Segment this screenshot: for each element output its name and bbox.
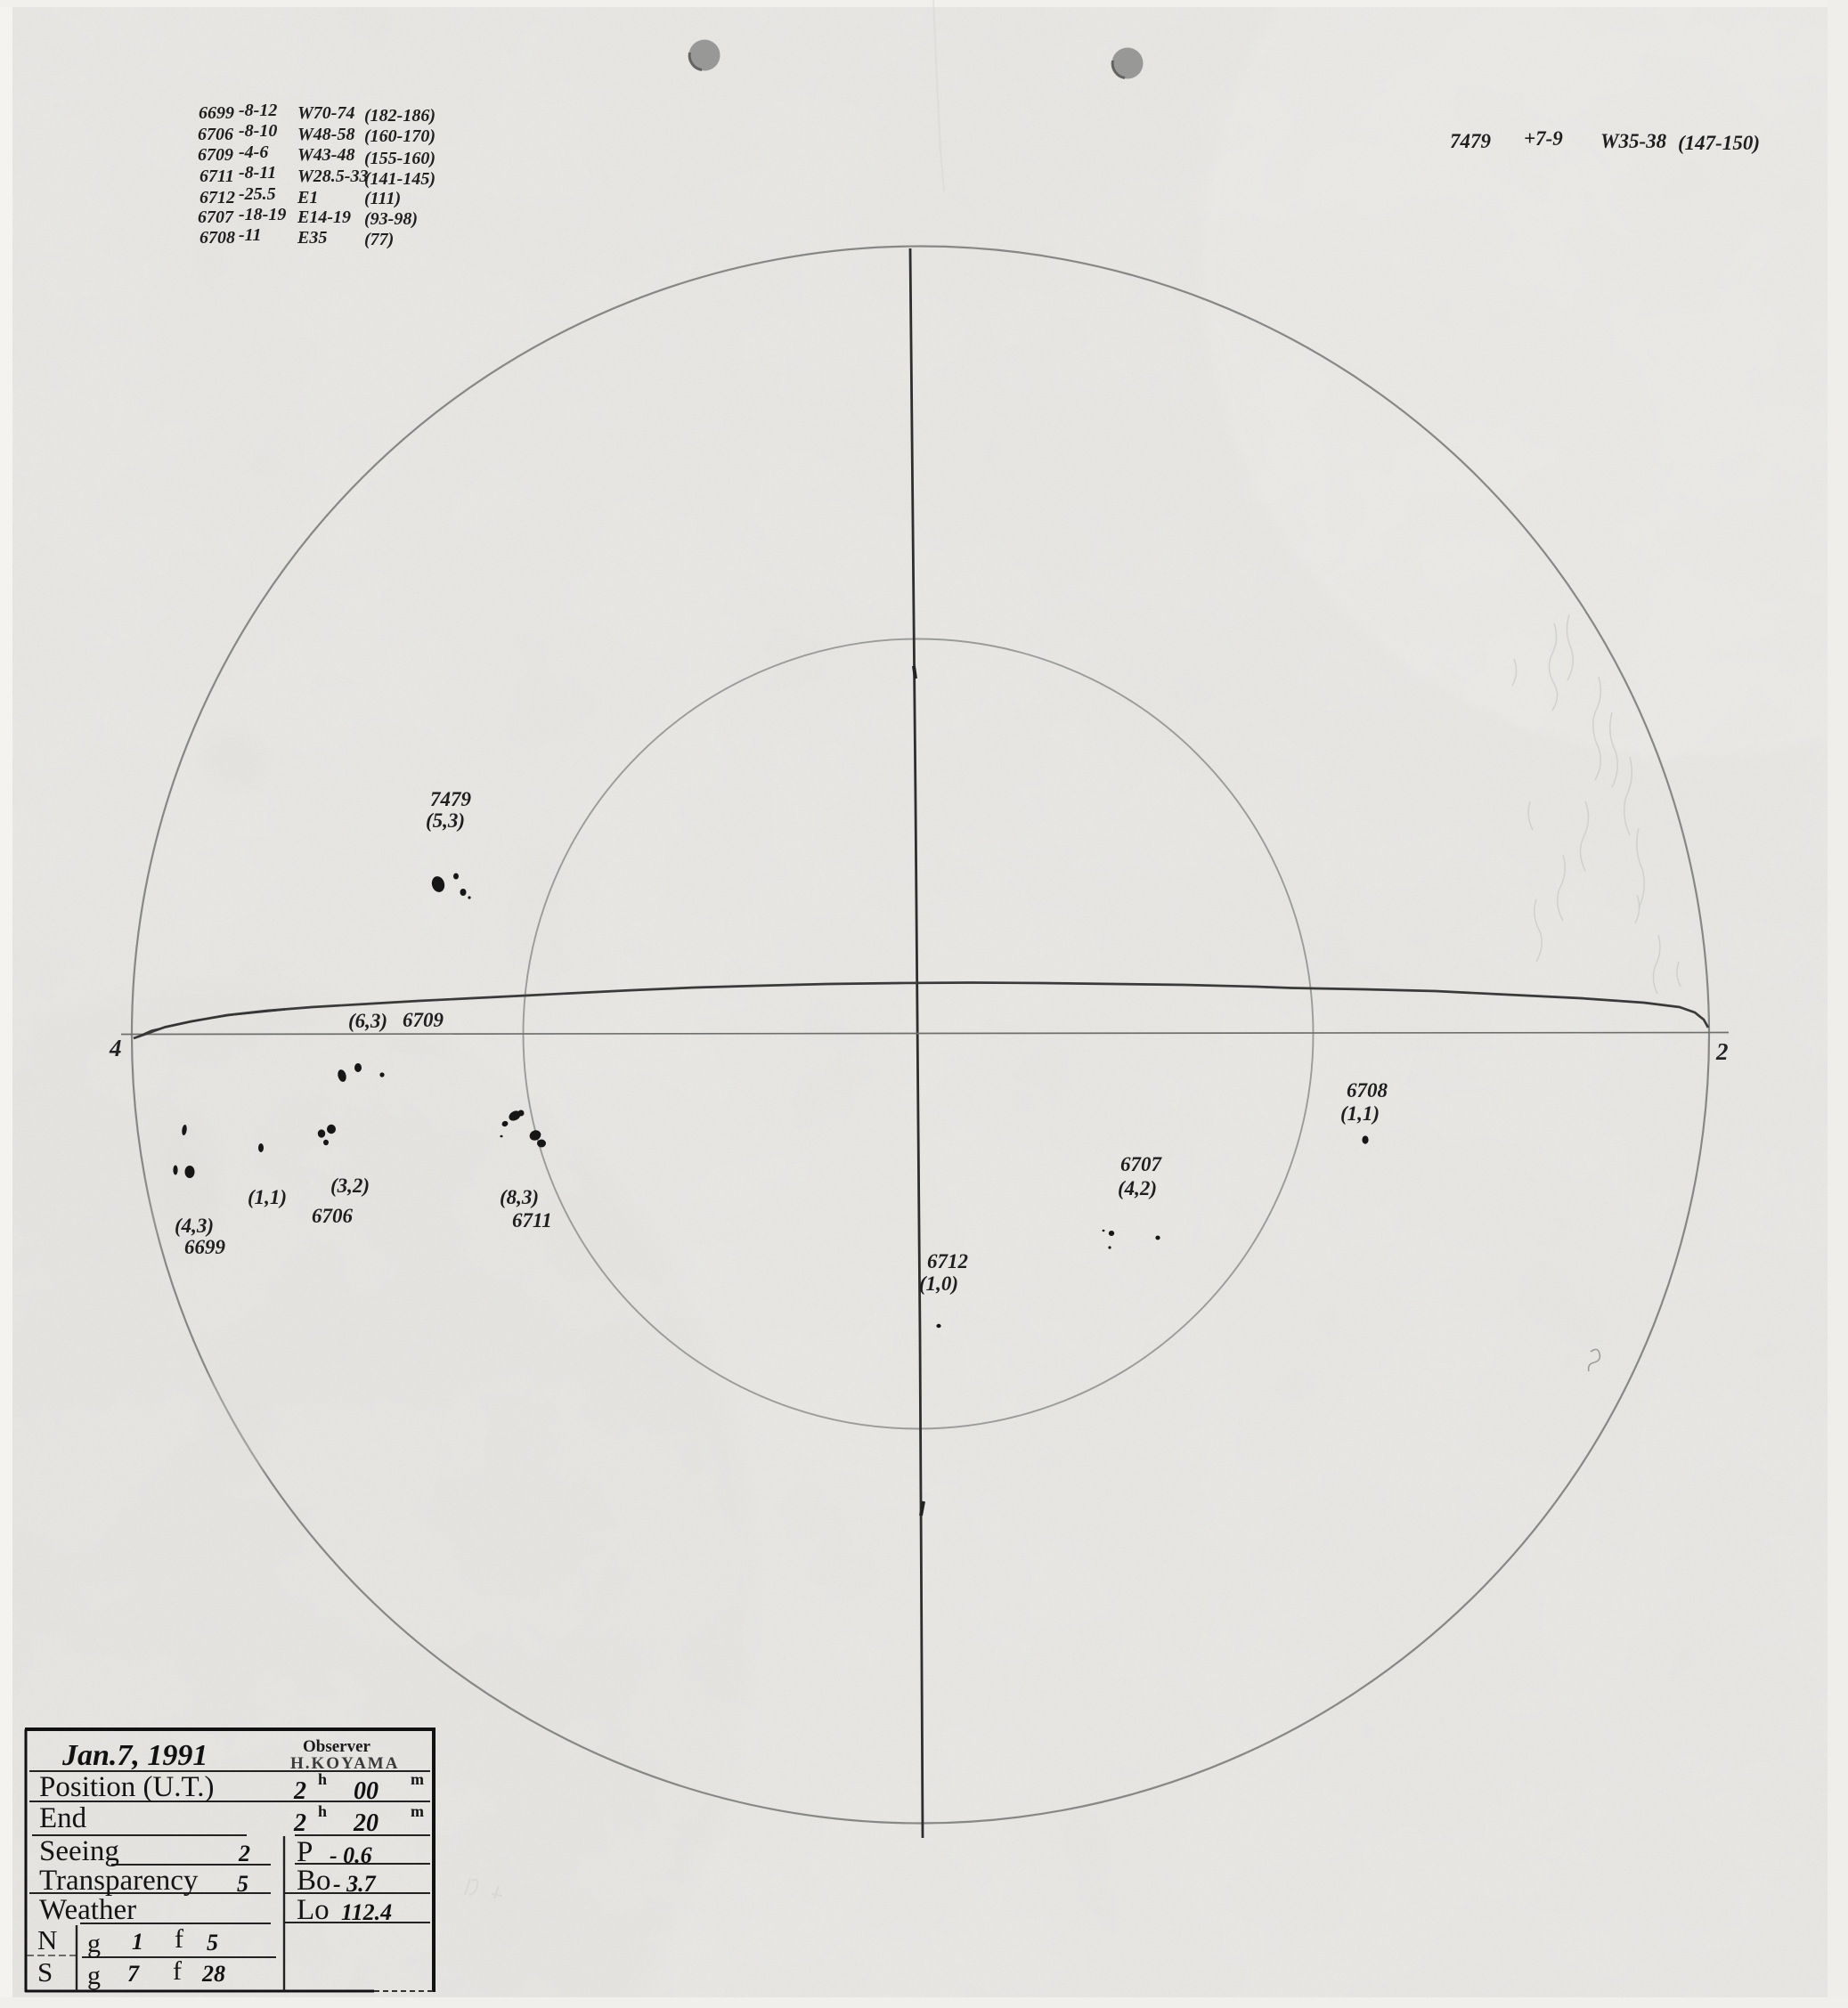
svg-text:E35: E35 bbox=[297, 228, 327, 248]
svg-text:Lo: Lo bbox=[297, 1894, 330, 1926]
svg-text:2: 2 bbox=[1715, 1038, 1729, 1065]
svg-text:E1: E1 bbox=[297, 188, 318, 207]
svg-text:W35-38: W35-38 bbox=[1600, 130, 1667, 152]
svg-text:(147-150): (147-150) bbox=[1678, 132, 1760, 154]
svg-text:6708: 6708 bbox=[199, 228, 235, 248]
svg-text:-18-19: -18-19 bbox=[239, 205, 286, 224]
svg-text:6707: 6707 bbox=[198, 207, 234, 227]
svg-text:6699: 6699 bbox=[184, 1236, 226, 1258]
svg-text:Bo: Bo bbox=[297, 1865, 331, 1897]
svg-text:h: h bbox=[318, 1770, 327, 1788]
svg-text:6699: 6699 bbox=[199, 103, 234, 123]
svg-text:112.4: 112.4 bbox=[341, 1899, 392, 1925]
svg-text:(182-186): (182-186) bbox=[364, 106, 436, 126]
svg-text:W48-58: W48-58 bbox=[297, 125, 354, 144]
svg-text:5: 5 bbox=[207, 1930, 218, 1955]
svg-text:Observer: Observer bbox=[303, 1737, 371, 1756]
svg-text:End: End bbox=[39, 1802, 87, 1834]
svg-text:m: m bbox=[411, 1770, 424, 1788]
svg-text:5: 5 bbox=[237, 1871, 248, 1897]
svg-text:6712: 6712 bbox=[927, 1250, 968, 1272]
svg-text:(1,1): (1,1) bbox=[1340, 1102, 1380, 1125]
svg-text:f: f bbox=[173, 1956, 182, 1986]
svg-text:Transparency: Transparency bbox=[39, 1865, 199, 1897]
svg-text:E14-19: E14-19 bbox=[297, 207, 351, 227]
svg-text:6708: 6708 bbox=[1347, 1079, 1388, 1102]
svg-text:Seeing: Seeing bbox=[39, 1835, 119, 1867]
svg-text:-4-6: -4-6 bbox=[239, 142, 268, 162]
svg-text:20: 20 bbox=[353, 1809, 379, 1837]
svg-text:H.KOYAMA: H.KOYAMA bbox=[290, 1754, 399, 1773]
svg-text:6707: 6707 bbox=[1120, 1153, 1163, 1175]
svg-text:-8-10: -8-10 bbox=[239, 121, 277, 141]
svg-text:P: P bbox=[297, 1836, 313, 1868]
svg-text:6706: 6706 bbox=[312, 1205, 354, 1227]
svg-text:7: 7 bbox=[127, 1961, 140, 1987]
svg-text:-8-11: -8-11 bbox=[239, 163, 276, 183]
svg-text:g: g bbox=[87, 1961, 101, 1990]
svg-text:+7-9: +7-9 bbox=[1524, 127, 1563, 150]
svg-text:(111): (111) bbox=[364, 189, 401, 208]
svg-text:(77): (77) bbox=[364, 230, 394, 249]
svg-text:28: 28 bbox=[201, 1961, 225, 1987]
svg-text:N: N bbox=[37, 1924, 57, 1955]
svg-text:-8-12: -8-12 bbox=[239, 101, 277, 120]
svg-text:Jan.7, 1991: Jan.7, 1991 bbox=[61, 1739, 208, 1772]
svg-text:(3,2): (3,2) bbox=[330, 1175, 370, 1197]
svg-text:6709: 6709 bbox=[198, 145, 233, 165]
svg-text:(1,0): (1,0) bbox=[919, 1272, 958, 1295]
svg-text:- 3.7: - 3.7 bbox=[333, 1871, 377, 1897]
svg-text:W43-48: W43-48 bbox=[297, 145, 354, 165]
svg-text:1: 1 bbox=[132, 1929, 143, 1955]
svg-text:(1,1): (1,1) bbox=[248, 1186, 287, 1208]
svg-text:6711: 6711 bbox=[199, 167, 234, 186]
svg-text:6706: 6706 bbox=[198, 125, 233, 144]
svg-text:00: 00 bbox=[354, 1777, 379, 1805]
svg-text:h: h bbox=[318, 1802, 327, 1820]
svg-text:- 0.6: - 0.6 bbox=[330, 1842, 372, 1868]
svg-text:-25.5: -25.5 bbox=[239, 184, 276, 204]
svg-text:(160-170): (160-170) bbox=[364, 126, 436, 146]
svg-text:m: m bbox=[411, 1802, 424, 1820]
svg-text:(5,3): (5,3) bbox=[426, 809, 465, 832]
svg-text:2: 2 bbox=[293, 1809, 306, 1837]
svg-text:4: 4 bbox=[109, 1035, 122, 1061]
svg-text:(155-160): (155-160) bbox=[364, 149, 436, 168]
svg-text:Weather: Weather bbox=[39, 1894, 136, 1926]
svg-text:(141-145): (141-145) bbox=[364, 169, 436, 189]
svg-text:6711: 6711 bbox=[512, 1209, 552, 1232]
svg-text:(8,3): (8,3) bbox=[500, 1186, 539, 1208]
svg-text:2: 2 bbox=[293, 1777, 306, 1805]
svg-text:6712: 6712 bbox=[199, 188, 235, 207]
svg-text:-11: -11 bbox=[239, 225, 262, 245]
svg-text:g: g bbox=[87, 1929, 101, 1958]
svg-text:W28.5-33: W28.5-33 bbox=[297, 167, 368, 186]
svg-text:(93-98): (93-98) bbox=[364, 209, 418, 229]
svg-text:7479: 7479 bbox=[430, 788, 472, 810]
svg-text:(4,2): (4,2) bbox=[1118, 1177, 1157, 1199]
svg-text:7479: 7479 bbox=[1450, 130, 1492, 152]
svg-text:6709: 6709 bbox=[403, 1009, 444, 1031]
svg-text:(4,3): (4,3) bbox=[175, 1215, 214, 1237]
svg-text:(6,3): (6,3) bbox=[348, 1010, 387, 1032]
svg-text:W70-74: W70-74 bbox=[297, 103, 354, 123]
svg-text:f: f bbox=[175, 1924, 183, 1954]
svg-text:S: S bbox=[37, 1956, 53, 1988]
svg-text:2: 2 bbox=[238, 1841, 250, 1866]
svg-text:Position (U.T.): Position (U.T.) bbox=[39, 1771, 214, 1803]
